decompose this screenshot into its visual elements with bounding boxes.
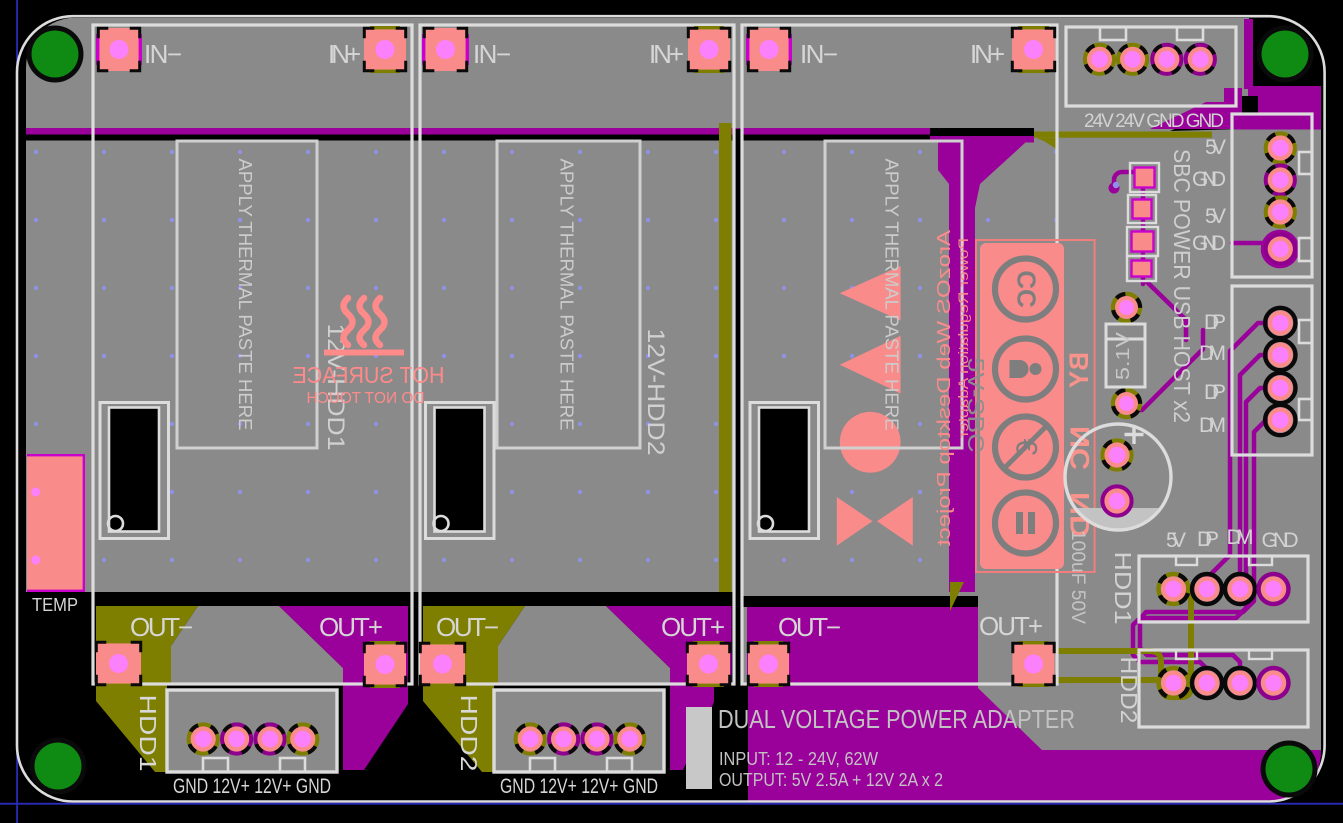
svg-text:APPLY THERMAL PASTE HERE: APPLY THERMAL PASTE HERE [882, 159, 902, 431]
svg-text:OUTPUT: 5V 2.5A + 12V 2A x 2: OUTPUT: 5V 2.5A + 12V 2A x 2 [719, 769, 943, 790]
svg-text:IN+: IN+ [649, 39, 684, 69]
svg-text:APPLY THERMAL PASTE HERE: APPLY THERMAL PASTE HERE [557, 159, 577, 431]
svg-text:5V: 5V [1166, 529, 1186, 552]
svg-text:DUAL VOLTAGE POWER ADAPTER: DUAL VOLTAGE POWER ADAPTER [718, 704, 1075, 734]
svg-text:OUT+: OUT+ [319, 612, 383, 642]
svg-text:DP: DP [1204, 311, 1226, 334]
svg-text:5V: 5V [1205, 205, 1226, 228]
svg-text:HDD1: HDD1 [135, 695, 161, 772]
svg-text:INPUT: 12 - 24V, 62W: INPUT: 12 - 24V, 62W [719, 748, 878, 769]
svg-text:DP: DP [1197, 528, 1219, 551]
svg-text:100uF 50V: 100uF 50V [1067, 530, 1088, 624]
svg-text:HOT SURFACE: HOT SURFACE [293, 362, 445, 388]
svg-text:5.1V: 5.1V [1113, 332, 1133, 380]
svg-text:BY: BY [1064, 352, 1094, 388]
svg-text:OUT+: OUT+ [661, 612, 725, 642]
svg-text:IN−: IN− [144, 39, 182, 69]
svg-text:IN+: IN+ [970, 39, 1005, 69]
svg-text:12V-HDD2: 12V-HDD2 [642, 329, 669, 456]
svg-text:5V: 5V [1205, 136, 1226, 159]
svg-text:OUT−: OUT− [436, 612, 499, 642]
svg-text:DO NOT TOUCH: DO NOT TOUCH [307, 390, 425, 407]
svg-text:IN+: IN+ [328, 39, 361, 69]
svg-text:DM: DM [1199, 414, 1226, 437]
svg-text:GND: GND [1192, 168, 1226, 191]
svg-text:OUT−: OUT− [130, 612, 193, 642]
svg-text:HDD2: HDD2 [456, 695, 482, 772]
svg-text:5V-SBC: 5V-SBC [963, 358, 989, 453]
svg-text:DP: DP [1204, 381, 1226, 404]
svg-text:HDD1: HDD1 [1110, 552, 1136, 625]
svg-text:APPLY THERMAL PASTE HERE: APPLY THERMAL PASTE HERE [235, 159, 255, 431]
svg-text:SBC POWER USB HOST x2: SBC POWER USB HOST x2 [1169, 149, 1195, 423]
svg-text:IN−: IN− [800, 39, 838, 69]
svg-text:DM: DM [1227, 526, 1254, 549]
svg-text:GND 12V+ 12V+ GND: GND 12V+ 12V+ GND [500, 775, 658, 798]
svg-text:GND 12V+ 12V+ GND: GND 12V+ 12V+ GND [173, 775, 331, 798]
svg-text:HDD2: HDD2 [1116, 657, 1142, 724]
svg-text:IN−: IN− [473, 39, 511, 69]
svg-text:GND: GND [1262, 529, 1299, 552]
svg-text:GND: GND [1192, 232, 1226, 255]
svg-text:DM: DM [1199, 342, 1226, 365]
svg-text:CC: CC [1012, 270, 1042, 308]
svg-text:OUT−: OUT− [778, 612, 841, 642]
svg-text:24V 24V GND GND: 24V 24V GND GND [1084, 111, 1224, 132]
svg-text:TEMP: TEMP [32, 595, 78, 615]
svg-text:ArozOS Web Desktop Project: ArozOS Web Desktop Project [934, 230, 954, 546]
svg-text:OUT+: OUT+ [979, 611, 1043, 641]
